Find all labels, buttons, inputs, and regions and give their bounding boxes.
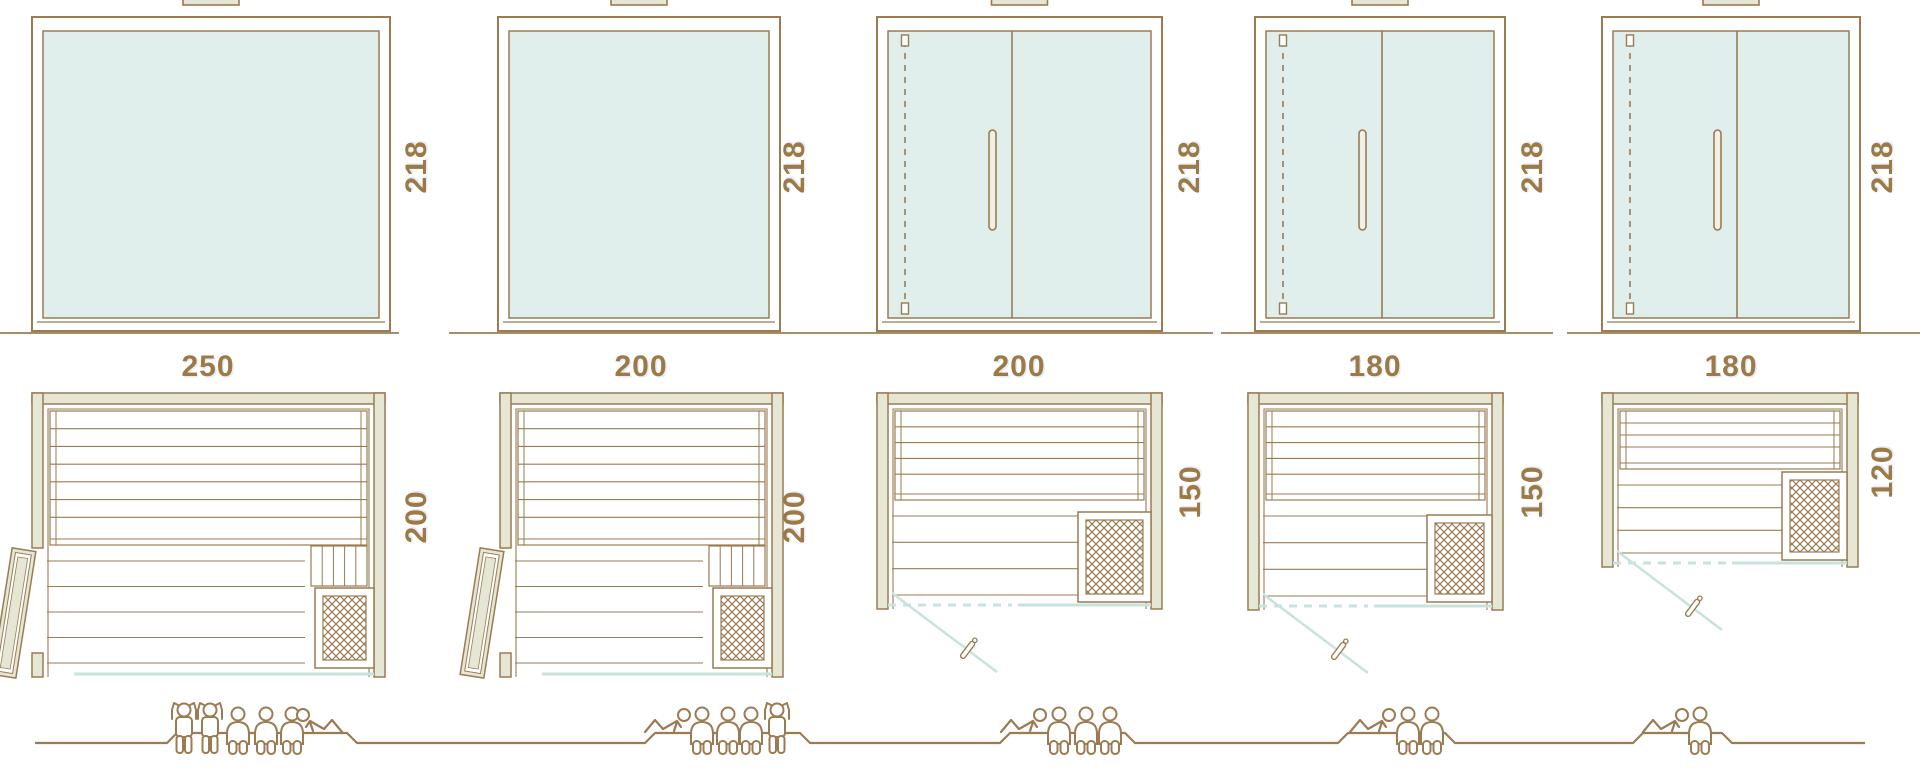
elevation-view <box>1255 0 1505 331</box>
sitting-person-icon <box>1689 708 1711 755</box>
plan-depth-label: 150 <box>1174 432 1208 552</box>
roof-vent-tab <box>183 0 239 5</box>
roof-vent-tab <box>611 0 667 5</box>
glass-panel <box>888 31 1151 318</box>
open-door-leaf <box>0 548 36 678</box>
lying-person-icon <box>645 709 690 732</box>
sitting-person-icon <box>1099 708 1121 755</box>
plan-depth-label: 150 <box>1516 432 1550 552</box>
glass-panel <box>1613 31 1849 318</box>
sauna-heater-icon <box>315 588 374 668</box>
capacity-pictogram <box>1643 708 1711 755</box>
plan-width-label: 250 <box>148 350 268 384</box>
hinge-icon <box>902 303 909 314</box>
elevation-view <box>1602 0 1860 331</box>
glass-panel <box>1266 31 1494 318</box>
bench-slats <box>518 411 765 545</box>
plan-width-label: 200 <box>959 350 1079 384</box>
bench-end-slats <box>311 546 367 586</box>
door-handle-icon <box>1714 130 1721 230</box>
elevation-height-label: 218 <box>1516 107 1550 227</box>
lying-person-icon <box>1643 709 1688 732</box>
bench-slats <box>1620 411 1840 469</box>
lying-person-icon <box>297 709 342 732</box>
elevation-height-label: 218 <box>400 107 434 227</box>
roof-vent-tab <box>1352 0 1408 5</box>
wall <box>500 653 511 677</box>
hinge-icon <box>1280 303 1287 314</box>
capacity-ground-line <box>35 733 1865 743</box>
plan-width-label: 200 <box>581 350 701 384</box>
wall <box>1602 393 1858 404</box>
standing-person-icon <box>765 703 789 753</box>
hinge-icon <box>1280 35 1287 46</box>
hinge-icon <box>1627 303 1634 314</box>
elevation-height-label: 218 <box>1173 107 1207 227</box>
bench-slats <box>515 561 703 663</box>
wall <box>1602 393 1613 567</box>
plan-depth-label: 120 <box>1866 412 1900 532</box>
diagram-canvas <box>0 0 1920 770</box>
lying-person-icon <box>1350 709 1395 732</box>
hinge-icon <box>1627 35 1634 46</box>
floor-plan-view <box>0 393 385 678</box>
hinge-icon <box>902 35 909 46</box>
bench-slats <box>1266 411 1485 500</box>
sitting-person-icon <box>255 708 277 755</box>
sitting-person-icon <box>717 708 739 755</box>
glass-panel <box>43 31 379 318</box>
plan-width-label: 180 <box>1315 350 1435 384</box>
lying-person-icon <box>1001 709 1046 732</box>
elevation-view <box>498 0 780 331</box>
sitting-person-icon <box>691 708 713 755</box>
floor-plan-view <box>1248 393 1503 673</box>
floor-plan-view <box>460 393 783 678</box>
plan-depth-label: 200 <box>778 457 812 577</box>
standing-person-icon <box>172 703 196 753</box>
elevation-view <box>32 0 390 331</box>
sauna-size-comparison-diagram: 250 200 200 180 180 218 218 218 218 218 … <box>0 0 1920 770</box>
sitting-person-icon <box>1048 708 1070 755</box>
wall <box>877 393 1162 404</box>
wall <box>1492 393 1503 610</box>
sitting-person-icon <box>1421 708 1443 755</box>
floor-plan-view <box>1602 393 1858 630</box>
plan-depth-label: 200 <box>400 457 434 577</box>
bench-end-slats <box>709 546 765 586</box>
elevation-height-label: 218 <box>778 107 812 227</box>
wall <box>32 393 385 404</box>
sauna-heater-icon <box>1782 472 1847 560</box>
capacity-pictogram <box>172 703 342 754</box>
sitting-person-icon <box>227 708 249 755</box>
sitting-person-icon <box>1397 708 1419 755</box>
wall <box>32 653 43 677</box>
door-handle-icon <box>989 130 996 230</box>
plan-width-label: 180 <box>1671 350 1791 384</box>
standing-person-icon <box>198 703 222 753</box>
roof-vent-tab <box>1703 0 1759 5</box>
bench-slats <box>47 561 305 663</box>
capacity-pictogram <box>645 703 789 754</box>
wall <box>500 393 783 404</box>
bench-slats <box>895 411 1144 500</box>
wall <box>374 393 385 677</box>
sitting-person-icon <box>740 708 762 755</box>
door-handle-icon <box>1359 130 1366 230</box>
wall <box>1248 393 1503 404</box>
sauna-heater-icon <box>1078 512 1151 602</box>
wall <box>1151 393 1162 609</box>
capacity-pictogram <box>1001 708 1121 755</box>
capacity-pictogram <box>1350 708 1443 755</box>
wall <box>877 393 888 609</box>
bench-slats <box>50 411 367 545</box>
wall <box>1248 393 1259 610</box>
glass-panel <box>509 31 769 318</box>
elevation-view <box>877 0 1162 331</box>
floor-plan-view <box>877 393 1162 672</box>
roof-vent-tab <box>992 0 1048 5</box>
sauna-heater-icon <box>1427 515 1492 602</box>
wall <box>1847 393 1858 567</box>
sitting-person-icon <box>1075 708 1097 755</box>
wall <box>500 393 511 548</box>
open-door-leaf <box>460 548 504 678</box>
wall <box>32 393 43 548</box>
elevation-height-label: 218 <box>1866 107 1900 227</box>
sauna-heater-icon <box>713 588 772 668</box>
